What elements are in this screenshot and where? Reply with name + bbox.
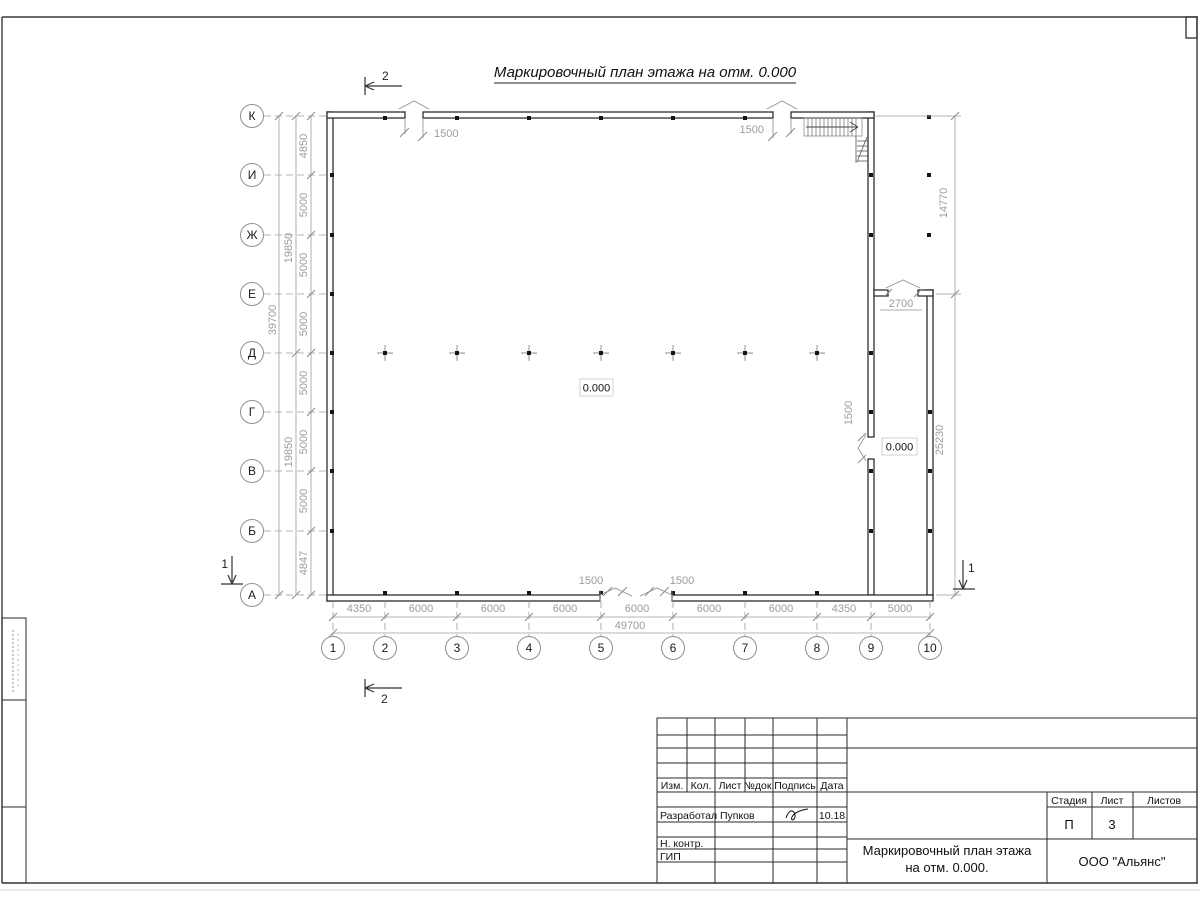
section-1-right: 1 <box>953 560 975 589</box>
dim-left-seg-1: 5000 <box>298 193 310 217</box>
title-block: Изм. Кол. Лист №док. Подпись Дата Разраб… <box>657 718 1197 883</box>
stair-lower-flight <box>856 136 868 163</box>
axis-col-6: 6 <box>670 641 677 655</box>
dim-ticks-left <box>275 112 315 599</box>
elevation-marks: 0.000 0.000 <box>580 379 917 455</box>
axis-row-g: Г <box>249 405 256 419</box>
tb-ncontrol-label: Н. контр. <box>660 838 703 850</box>
axis-circles-left: К И Ж Е Д Г В Б А <box>241 105 264 607</box>
axis-lines-left <box>264 116 327 595</box>
signature-mark <box>786 809 808 820</box>
tb-header-podpis: Подпись <box>774 780 816 792</box>
tb-developed-date: 10.18 <box>819 810 845 822</box>
dim-bottom-seg-2: 6000 <box>481 603 505 615</box>
wall-left <box>327 112 333 601</box>
axis-col-4: 4 <box>526 641 533 655</box>
tb-sheets-label: Листов <box>1147 795 1182 807</box>
walls <box>327 112 933 601</box>
dim-bottom-total: 49700 <box>615 620 646 632</box>
axis-col-7: 7 <box>742 641 749 655</box>
dim-left-seg-7: 4847 <box>298 551 310 575</box>
section-2-bottom-label: 2 <box>381 692 388 706</box>
section-1-left: 1 <box>221 556 243 584</box>
dim-left-seg-5: 5000 <box>298 430 310 454</box>
tb-header-ndok: №док. <box>744 780 775 792</box>
dim-opening-bottom-2: 1500 <box>670 575 694 587</box>
dim-opening-top-1: 1500 <box>434 128 458 140</box>
dim-bottom-seg-0: 4350 <box>347 603 371 615</box>
wall-bottom-a <box>327 595 600 601</box>
dim-right-upper: 14770 <box>938 188 950 219</box>
dim-left-seg-6: 5000 <box>298 489 310 513</box>
tb-doc-title-line1: Маркировочный план этажа <box>863 843 1032 858</box>
dim-left-total: 39700 <box>267 305 279 336</box>
dim-left-seg-2: 5000 <box>298 253 310 277</box>
wall-axis9-upper <box>868 112 874 437</box>
dim-bottom-seg-8: 5000 <box>888 603 912 615</box>
dim-bottom: 4350 6000 6000 6000 6000 6000 6000 4350 … <box>329 601 934 637</box>
dim-left: 4850 5000 5000 5000 5000 5000 5000 4847 … <box>264 112 327 599</box>
tb-doc-title-line2: на отм. 0.000. <box>905 860 988 875</box>
axis-row-v: В <box>248 464 256 478</box>
dim-left-seg-3: 5000 <box>298 312 310 336</box>
section-2-top-label: 2 <box>382 69 389 83</box>
dim-left-seg-0: 4850 <box>298 134 310 158</box>
wall-top-b <box>423 112 773 118</box>
dim-opening-top-2: 1500 <box>740 124 764 136</box>
wall-bottom-b <box>672 595 933 601</box>
wall-top-c <box>791 112 874 118</box>
axis-row-a: А <box>248 588 256 602</box>
tb-sheet-label: Лист <box>1101 795 1124 807</box>
axis-row-zh: Ж <box>246 228 257 242</box>
elevation-hall: 0.000 <box>583 383 611 395</box>
frame-corner-box <box>1186 17 1197 38</box>
dim-bottom-seg-5: 6000 <box>697 603 721 615</box>
axis-row-e: Е <box>248 287 256 301</box>
axis-row-i: И <box>248 168 257 182</box>
axis-col-9: 9 <box>868 641 875 655</box>
dim-left-seg-4: 5000 <box>298 371 310 395</box>
floor-plan-canvas: Маркировочный план этажа на отм. 0.000 <box>0 0 1200 900</box>
axis-row-k: К <box>249 109 256 123</box>
axis-col-10: 10 <box>923 641 937 655</box>
drawing-sheet: Маркировочный план этажа на отм. 0.000 <box>0 0 1200 900</box>
dim-bottom-seg-6: 6000 <box>769 603 793 615</box>
dim-bottom-seg-4: 6000 <box>625 603 649 615</box>
dim-opening-annex: 2700 <box>889 298 913 310</box>
wall-axis9-lower <box>868 459 874 595</box>
wall-annex-right <box>927 290 933 595</box>
section-2-bottom: 2 <box>365 679 402 706</box>
tb-gip-label: ГИП <box>660 851 681 863</box>
tb-header-data: Дата <box>820 780 843 792</box>
tb-developed-label: Разработал <box>660 810 717 822</box>
dim-opening-right: 1500 <box>843 401 855 425</box>
openings: 1500 1500 1500 1500 1500 2700 <box>399 101 922 602</box>
dim-left-group-1: 19850 <box>283 437 295 468</box>
tb-sheet-value: 3 <box>1108 817 1115 832</box>
left-margin-blocks <box>2 618 26 883</box>
axis-col-8: 8 <box>814 641 821 655</box>
tb-company: ООО "Альянс" <box>1079 854 1166 869</box>
columns <box>330 115 932 595</box>
dim-opening-bottom-1: 1500 <box>579 575 603 587</box>
dim-left-group-0: 19850 <box>283 233 295 264</box>
axis-circles-bottom: 1 2 3 4 5 6 7 8 9 10 <box>322 637 942 660</box>
wall-top-a <box>327 112 405 118</box>
stairs <box>804 118 868 163</box>
tb-developed-name: Пупков <box>720 810 755 822</box>
axis-row-b: Б <box>248 524 256 538</box>
tb-header-kol: Кол. <box>691 780 712 792</box>
tb-header-list: Лист <box>719 780 742 792</box>
axis-col-3: 3 <box>454 641 461 655</box>
dim-bottom-seg-3: 6000 <box>553 603 577 615</box>
axis-row-d: Д <box>248 346 256 360</box>
axis-col-1: 1 <box>330 641 337 655</box>
dim-bottom-seg-7: 4350 <box>832 603 856 615</box>
plan-title: Маркировочный план этажа на отм. 0.000 <box>494 64 797 83</box>
tb-header-izm: Изм. <box>661 780 684 792</box>
dim-right-lower: 25230 <box>934 425 946 456</box>
elevation-annex: 0.000 <box>886 442 914 454</box>
section-1-right-label: 1 <box>968 561 975 575</box>
axis-col-5: 5 <box>598 641 605 655</box>
sheet-frame <box>0 17 1200 890</box>
dim-right: 14770 25230 <box>876 112 961 599</box>
tb-stage-value: П <box>1064 817 1073 832</box>
axis-col-2: 2 <box>382 641 389 655</box>
dim-bottom-seg-1: 6000 <box>409 603 433 615</box>
section-1-left-label: 1 <box>221 557 228 571</box>
page-title: Маркировочный план этажа на отм. 0.000 <box>494 64 797 81</box>
section-2-top: 2 <box>365 69 402 95</box>
tb-stage-label: Стадия <box>1051 795 1087 807</box>
